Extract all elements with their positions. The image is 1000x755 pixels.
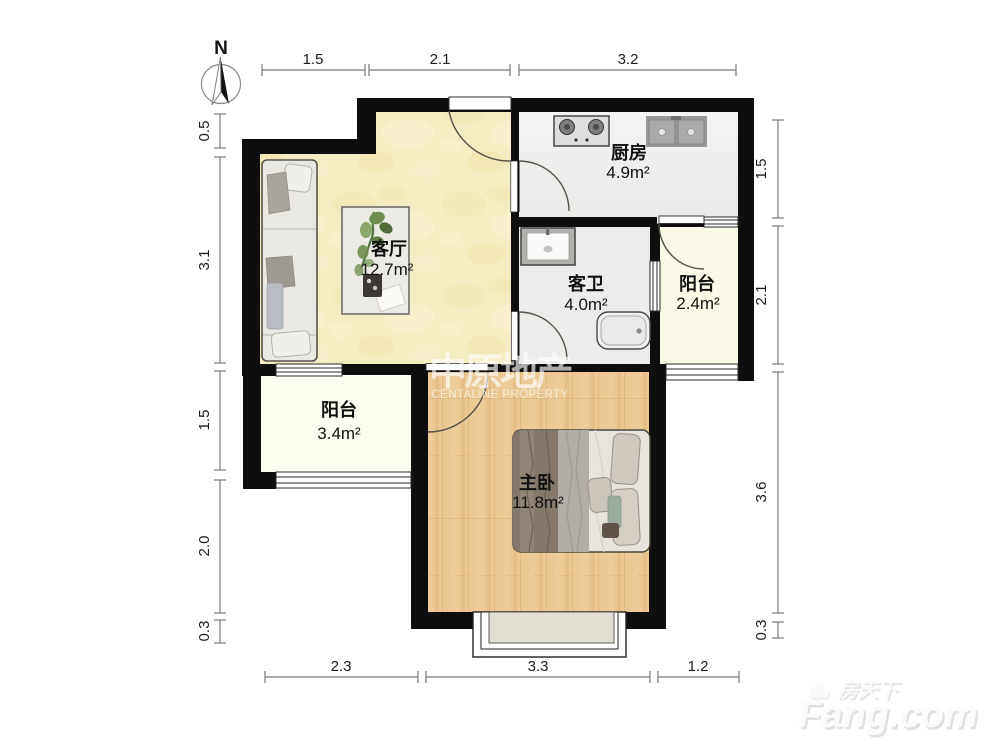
svg-text:0.3: 0.3 <box>753 620 770 641</box>
svg-text:3.1: 3.1 <box>196 250 213 271</box>
svg-text:客卫: 客卫 <box>568 273 604 294</box>
svg-text:1.2: 1.2 <box>688 658 709 675</box>
svg-text:0.5: 0.5 <box>196 121 213 142</box>
svg-text:3.3: 3.3 <box>528 658 549 675</box>
svg-text:3.4m²: 3.4m² <box>317 424 361 443</box>
svg-text:2.0: 2.0 <box>196 536 213 557</box>
svg-text:Fang.com: Fang.com <box>798 694 977 736</box>
svg-text:2.1: 2.1 <box>430 51 451 68</box>
svg-text:4.0m²: 4.0m² <box>564 295 608 314</box>
svg-text:1.5: 1.5 <box>196 410 213 431</box>
svg-text:2.3: 2.3 <box>331 658 352 675</box>
svg-text:3.2: 3.2 <box>618 51 639 68</box>
svg-text:客厅: 客厅 <box>371 238 407 259</box>
svg-text:0.3: 0.3 <box>196 621 213 642</box>
svg-text:2.1: 2.1 <box>753 285 770 306</box>
svg-text:N: N <box>214 38 228 59</box>
svg-text:4.9m²: 4.9m² <box>606 163 650 182</box>
svg-text:阳台: 阳台 <box>679 273 715 294</box>
svg-text:3.6: 3.6 <box>753 482 770 503</box>
svg-text:11.8m²: 11.8m² <box>512 493 564 512</box>
svg-text:厨房: 厨房 <box>611 142 647 163</box>
svg-text:1.5: 1.5 <box>303 51 324 68</box>
svg-text:CENTALINE PROPERTY: CENTALINE PROPERTY <box>431 389 568 401</box>
svg-text:中原地产: 中原地产 <box>429 352 572 394</box>
svg-text:12.7m²: 12.7m² <box>361 260 414 279</box>
svg-text:主卧: 主卧 <box>519 472 555 493</box>
svg-text:2.4m²: 2.4m² <box>676 294 720 313</box>
svg-text:1.5: 1.5 <box>753 159 770 180</box>
svg-text:阳台: 阳台 <box>321 399 357 420</box>
